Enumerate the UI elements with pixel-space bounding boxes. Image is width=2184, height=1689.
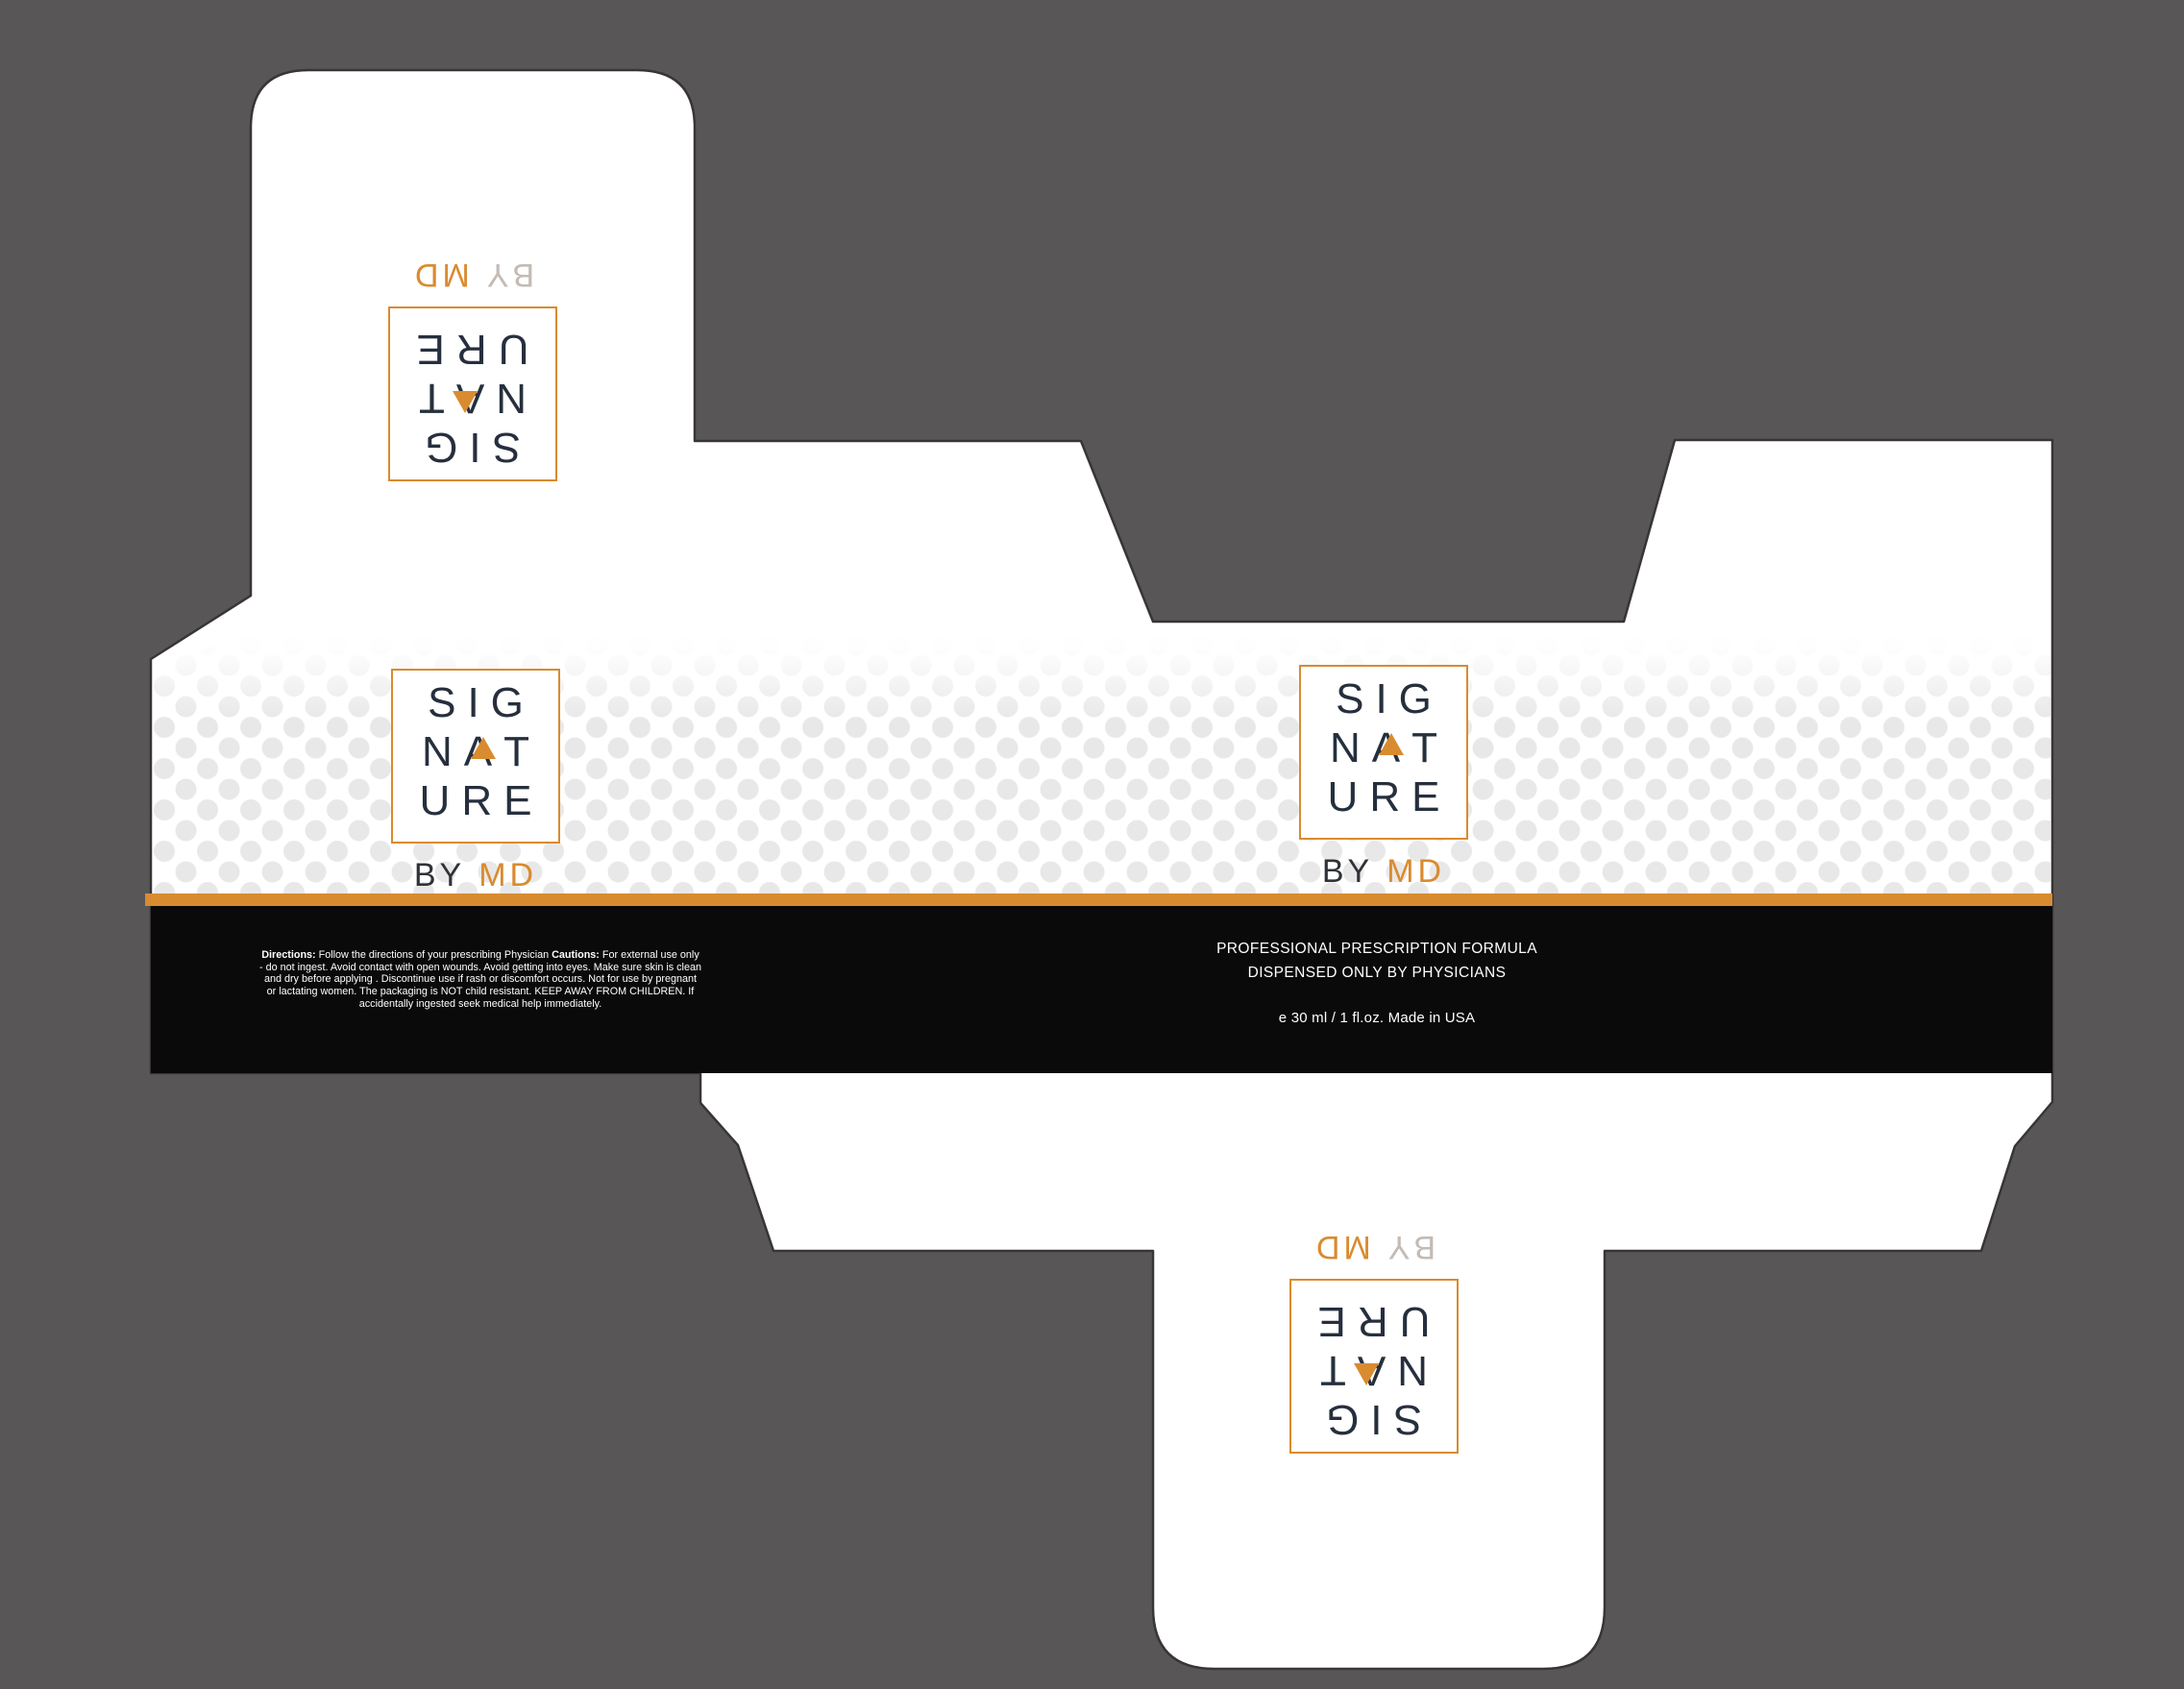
orange-accent-bar [145,893,2052,906]
logo-row-nat: NAT [379,374,555,423]
logo-row-ure: URE [379,325,555,374]
formula-text-block: PROFESSIONAL PRESCRIPTION FORMULA DISPEN… [1137,938,1617,1030]
byline-md: MD [411,257,470,293]
signature-logo-top-flap-rotated: SIG NAT URE BYMD [386,256,559,481]
logo-row-ure: URE [1280,1297,1457,1346]
packaging-dieline-canvas: SIG NAT URE BYMD SIG NAT URE BYMD SIG NA… [0,0,2184,1689]
logo-byline: BYMD [1297,853,1470,891]
logo-letter-a-orange-triangle: A [445,374,484,423]
logo-letter-t: T [1309,1347,1346,1394]
signature-logo-box: SIG NAT URE [388,306,557,481]
logo-letter-n: N [1386,1347,1428,1394]
byline-md: MD [479,857,537,893]
signature-logo-bottom-flap-rotated: SIG NAT URE BYMD [1288,1228,1460,1454]
logo-letter-t: T [1411,724,1449,771]
logo-row-sig: SIG [379,423,555,472]
logo-row-nat: NAT [1280,1346,1457,1395]
byline-md: MD [1386,853,1445,890]
signature-logo-box: SIG NAT URE [1299,665,1468,840]
logo-row-sig: SIG [393,678,570,727]
directions-label: Directions: [261,949,315,961]
formula-line-1: PROFESSIONAL PRESCRIPTION FORMULA [1137,938,1617,962]
volume-made-in-line: e 30 ml / 1 fl.oz. Made in USA [1137,1007,1617,1030]
logo-letter-n: N [484,375,527,422]
logo-byline: BYMD [1288,1228,1460,1265]
logo-letter-t: T [503,728,541,775]
signature-logo-box: SIG NAT URE [391,669,560,844]
cautions-label: Cautions: [552,949,600,961]
formula-line-2: DISPENSED ONLY BY PHYSICIANS [1137,962,1617,986]
logo-byline: BYMD [386,256,559,293]
signature-logo-front-panel: SIG NAT URE BYMD [389,669,562,894]
logo-letter-n: N [1330,724,1372,771]
directions-cautions-text: Directions: Follow the directions of you… [259,949,701,1010]
logo-letter-a-orange-triangle: A [1346,1346,1386,1395]
logo-letter-n: N [422,728,464,775]
logo-letter-a-orange-triangle: A [464,727,503,776]
logo-row-sig: SIG [1301,674,1478,723]
signature-logo-main-panel: SIG NAT URE BYMD [1297,665,1470,891]
byline-by: BY [414,857,465,893]
logo-row-nat: NAT [393,727,570,776]
byline-md: MD [1313,1229,1371,1265]
logo-letter-t: T [407,375,445,422]
logo-row-nat: NAT [1301,723,1478,772]
logo-byline: BYMD [389,857,562,894]
directions-body: Follow the directions of your prescribin… [319,949,549,961]
logo-letter-a-orange-triangle: A [1372,723,1411,772]
byline-by: BY [483,257,534,293]
byline-by: BY [1322,853,1373,890]
logo-row-sig: SIG [1280,1395,1457,1444]
signature-logo-box: SIG NAT URE [1289,1279,1459,1454]
byline-by: BY [1385,1229,1436,1265]
logo-row-ure: URE [393,776,570,825]
logo-row-ure: URE [1301,772,1478,821]
